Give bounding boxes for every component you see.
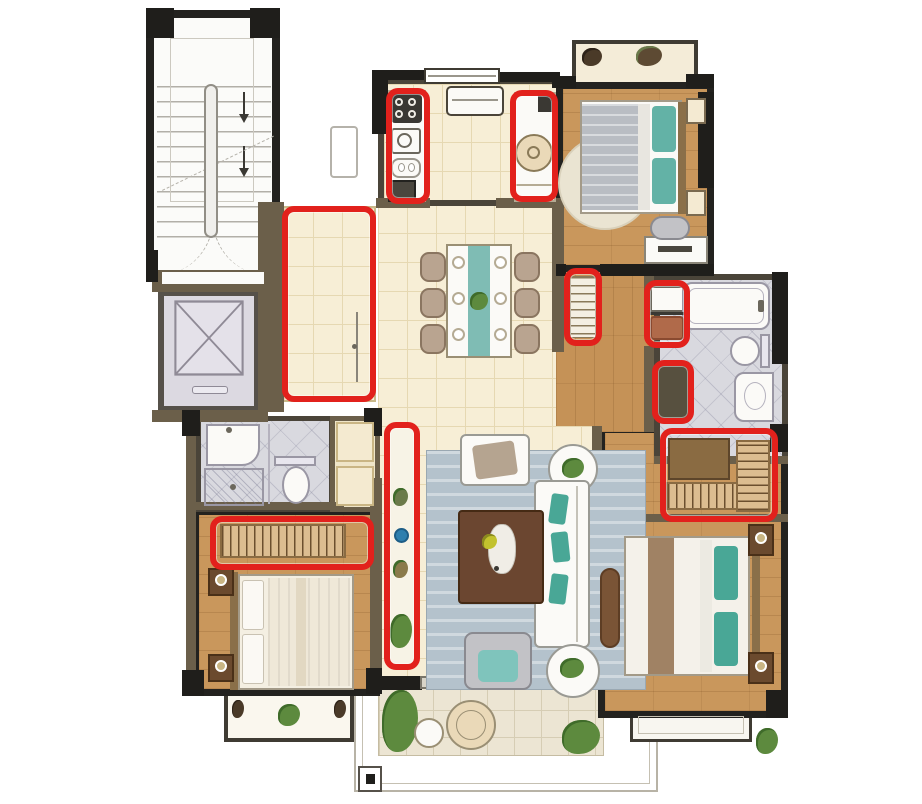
- bed-north-pillow: [652, 158, 676, 204]
- glass-partition: [268, 424, 270, 504]
- corner-plant: [756, 728, 778, 754]
- dining-chair: [420, 288, 446, 318]
- bed2-fold: [296, 578, 306, 686]
- bed-north-blanket: [582, 104, 638, 210]
- wall: [772, 272, 788, 364]
- wall: [766, 690, 788, 718]
- ac-platform: [330, 126, 358, 178]
- wall: [386, 70, 424, 80]
- wall: [250, 8, 280, 38]
- highlight-hall-cabinet-lower: [652, 360, 694, 424]
- highlight-walk-in-closet: [660, 428, 778, 522]
- plate: [452, 328, 465, 341]
- bay-master-line: [638, 716, 744, 734]
- wall: [498, 72, 560, 82]
- sofa-pillow: [548, 573, 569, 605]
- wall: [686, 74, 714, 88]
- lamp: [755, 532, 767, 544]
- toilet-bowl: [730, 336, 760, 366]
- plate: [452, 292, 465, 305]
- armchair-cushion: [472, 440, 518, 480]
- nightstand: [686, 190, 706, 216]
- bed-master-sheet: [700, 540, 712, 672]
- dining-chair: [420, 324, 446, 354]
- floor-plan: [0, 0, 922, 804]
- range-hood-line: [452, 99, 498, 101]
- sink-faucet: [226, 427, 232, 433]
- stair-arrow-head-1: [239, 114, 249, 123]
- bed-master-pillow: [714, 546, 738, 600]
- wall: [146, 8, 174, 38]
- lamp: [215, 574, 227, 586]
- shower-drain: [230, 484, 236, 490]
- stair-arrow-down-1: [243, 92, 245, 116]
- bench: [600, 568, 620, 648]
- sofa-pillow: [550, 531, 570, 563]
- stair-rail: [204, 84, 218, 238]
- wall: [182, 410, 200, 436]
- lounge-chair-cushion: [478, 650, 518, 682]
- closet-niche-shelf: [336, 466, 374, 506]
- sofa-back-line: [576, 486, 578, 642]
- plate: [452, 256, 465, 269]
- highlight-hall-cabinet-upper: [644, 280, 690, 348]
- balcony-table-inner: [456, 710, 486, 740]
- elevator-handle: [192, 386, 228, 394]
- kitchen-window-line: [428, 75, 496, 77]
- stair-door-opening: [162, 272, 264, 284]
- closet-niche-shelf: [336, 422, 374, 462]
- bed-master-runner: [648, 538, 674, 674]
- wall: [378, 676, 422, 690]
- balcony-table-small: [414, 718, 444, 748]
- bed-north-pillow: [652, 106, 676, 152]
- wall: [552, 76, 576, 88]
- highlight-bedroom-wardrobe: [210, 516, 374, 570]
- bed-master-pillow: [714, 612, 738, 666]
- wall: [600, 264, 714, 276]
- wall: [152, 410, 268, 422]
- wall: [186, 414, 196, 676]
- highlight-kitchen-counter-left: [386, 88, 430, 204]
- wall: [370, 478, 382, 694]
- wall: [258, 202, 284, 412]
- range-hood: [446, 86, 504, 116]
- nightstand: [686, 98, 706, 124]
- desk-monitor: [658, 246, 692, 252]
- lamp: [755, 660, 767, 672]
- highlight-slatted-cabinet: [564, 268, 602, 346]
- bed-master-headboard: [752, 556, 760, 652]
- bathtub-inner: [688, 288, 764, 324]
- coffee-table-dot: [494, 566, 499, 571]
- dining-chair: [514, 324, 540, 354]
- dining-chair: [514, 252, 540, 282]
- plate: [494, 328, 507, 341]
- highlight-kitchen-counter-right: [510, 90, 558, 202]
- bathtub-faucet: [758, 300, 764, 312]
- lamp: [215, 660, 227, 672]
- desk-chair: [650, 216, 690, 240]
- bathroom2-sink: [206, 424, 260, 466]
- coffee-table-sculpture: [488, 524, 516, 574]
- railing-post-core: [366, 774, 375, 784]
- bed-north-sheet: [638, 104, 650, 210]
- stair-arrow-head-2: [239, 168, 249, 177]
- wall: [146, 250, 158, 282]
- wall: [552, 200, 564, 352]
- toilet2-tank: [274, 456, 316, 466]
- vanity-basin: [744, 382, 766, 410]
- plate: [494, 256, 507, 269]
- highlight-entry-foyer: [282, 206, 376, 402]
- bed2-pillow: [242, 634, 264, 684]
- dining-chair: [420, 252, 446, 282]
- dining-chair: [514, 288, 540, 318]
- wall: [182, 670, 204, 696]
- toilet-tank: [760, 334, 770, 368]
- bed2-blanket: [268, 578, 350, 686]
- bed2-pillow: [242, 580, 264, 630]
- elevator-x-icon: [174, 300, 244, 376]
- plate: [494, 292, 507, 305]
- toilet2-bowl: [282, 466, 310, 504]
- highlight-display-shelf: [384, 422, 420, 670]
- bed-north-headboard: [678, 102, 686, 214]
